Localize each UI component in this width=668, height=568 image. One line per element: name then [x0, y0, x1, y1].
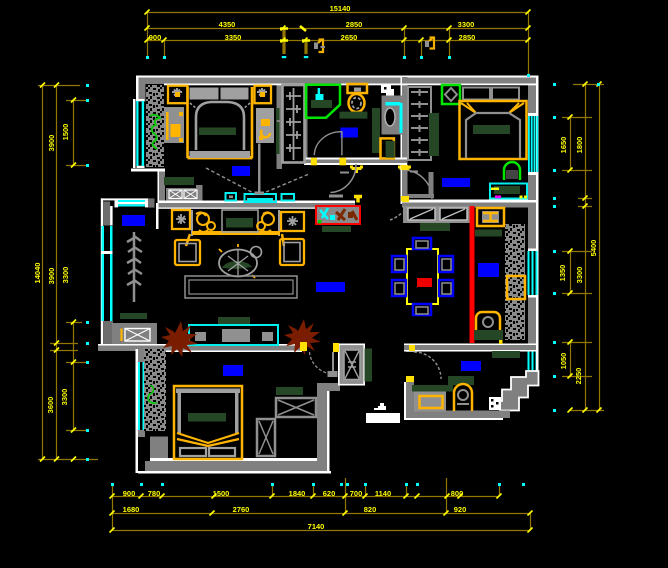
svg-text:3300: 3300	[61, 267, 70, 284]
svg-text:1140: 1140	[375, 489, 391, 498]
svg-text:15140: 15140	[330, 4, 351, 13]
svg-text:1350: 1350	[558, 265, 567, 282]
svg-text:700: 700	[350, 489, 363, 498]
svg-text:780: 780	[148, 489, 161, 498]
svg-text:3350: 3350	[225, 33, 242, 42]
svg-text:2850: 2850	[346, 20, 363, 29]
svg-text:2250: 2250	[574, 368, 583, 385]
svg-text:3300: 3300	[458, 20, 475, 29]
svg-text:2650: 2650	[341, 33, 358, 42]
svg-text:620: 620	[323, 489, 336, 498]
svg-text:3900: 3900	[47, 268, 56, 285]
svg-text:1650: 1650	[559, 137, 568, 154]
svg-text:5400: 5400	[589, 240, 598, 257]
svg-text:900: 900	[149, 33, 162, 42]
svg-text:1800: 1800	[575, 137, 584, 154]
svg-text:1680: 1680	[123, 505, 140, 514]
svg-text:2760: 2760	[233, 505, 250, 514]
svg-text:1840: 1840	[289, 489, 306, 498]
svg-text:7140: 7140	[308, 522, 325, 531]
svg-text:800: 800	[451, 489, 464, 498]
svg-text:920: 920	[454, 505, 467, 514]
svg-text:14040: 14040	[33, 263, 42, 284]
svg-text:820: 820	[364, 505, 377, 514]
svg-text:2850: 2850	[459, 33, 476, 42]
svg-text:1050: 1050	[559, 353, 568, 370]
svg-text:900: 900	[123, 489, 136, 498]
svg-text:3300: 3300	[575, 267, 584, 284]
svg-text:3900: 3900	[47, 135, 56, 152]
svg-text:1500: 1500	[213, 489, 230, 498]
svg-text:1500: 1500	[61, 124, 70, 141]
svg-text:3600: 3600	[46, 397, 55, 414]
svg-text:3300: 3300	[60, 389, 69, 406]
svg-text:4350: 4350	[219, 20, 236, 29]
